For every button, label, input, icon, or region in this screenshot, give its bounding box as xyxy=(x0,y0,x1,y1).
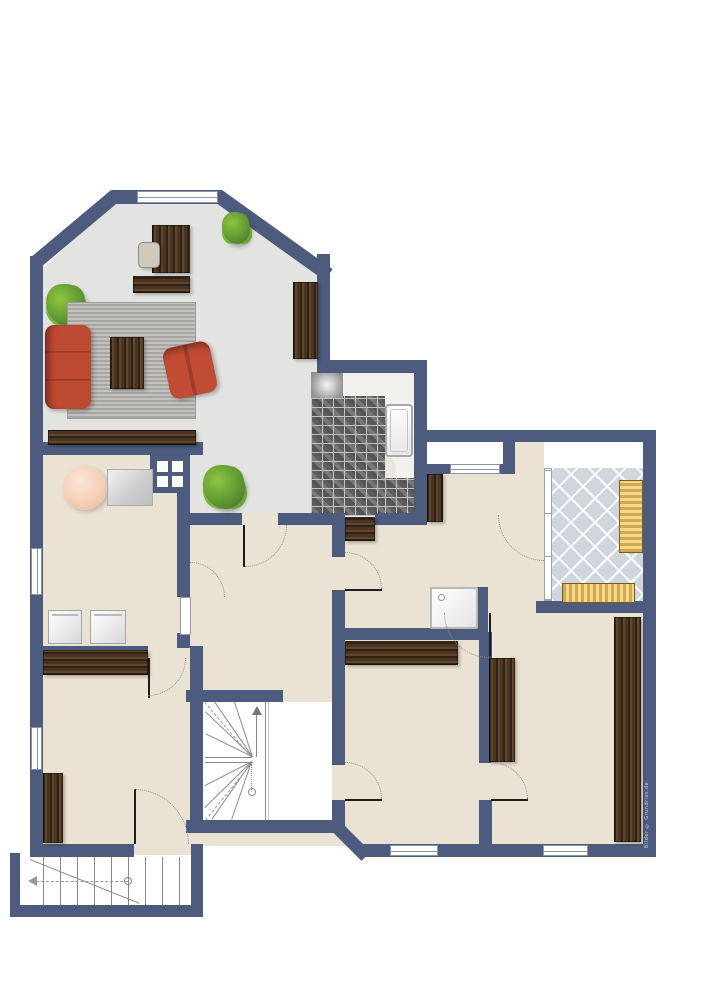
stair-walk-start-circle xyxy=(248,788,256,796)
paper-lamp xyxy=(63,466,107,510)
glass-block xyxy=(157,461,168,472)
stair-edge-line xyxy=(265,702,266,820)
hall-mid-wall xyxy=(332,525,345,557)
hall-top-wall xyxy=(190,513,242,525)
shower-head-plate xyxy=(311,372,343,398)
hall-mid-wall-2 xyxy=(332,590,345,702)
stairwell-top-wall xyxy=(186,690,283,702)
coffee-table xyxy=(110,337,144,389)
bottom-window-2 xyxy=(543,845,588,856)
lowboard xyxy=(48,430,196,445)
terrace-glass-wall xyxy=(544,468,552,601)
rooms-divider-wall-2 xyxy=(479,800,492,857)
stair-tread xyxy=(205,762,252,763)
wardrobe-right-room-left xyxy=(489,658,515,762)
wardrobe-bottom-left-room-top xyxy=(43,650,148,675)
armchair xyxy=(161,340,219,401)
threshold-cabinet xyxy=(345,517,375,541)
glass-block-pier xyxy=(150,455,190,493)
bathroom-bottom-wall xyxy=(278,513,345,525)
wardrobe-right-room-right xyxy=(614,617,641,842)
external-stair-tread xyxy=(145,857,146,905)
desk-return xyxy=(133,276,190,293)
external-stair-floor xyxy=(20,855,191,905)
stair-edge-line xyxy=(268,702,269,820)
external-stair-bottom-wall xyxy=(10,905,203,917)
external-stair-walk-line xyxy=(36,881,128,882)
external-stair-tread xyxy=(179,857,180,905)
stair-left-wall xyxy=(190,646,203,833)
stair-walk-line xyxy=(256,714,257,757)
external-stair-right-wall xyxy=(191,844,203,917)
door-leaf-middle-room xyxy=(345,799,382,801)
glass-block xyxy=(172,461,183,472)
utility-right-wall-2 xyxy=(177,633,190,648)
utility-right-wall xyxy=(177,493,190,597)
left-window-2 xyxy=(31,727,42,770)
top-window xyxy=(137,191,218,203)
dryer xyxy=(90,610,126,644)
left-window-1 xyxy=(31,548,42,595)
wardrobe-right-top-room xyxy=(427,474,443,522)
living-right-wall xyxy=(317,254,330,373)
glass-block xyxy=(172,476,183,487)
bathroom-mosaic-tiles xyxy=(311,396,385,516)
stairwell-bottom-wall xyxy=(186,820,343,833)
bottom-left-wall xyxy=(30,844,134,857)
sun-lounger-vertical xyxy=(619,480,643,553)
washing-machine xyxy=(48,610,82,644)
watermark-text: Bilder © Grundriss.de xyxy=(644,770,655,848)
stair-tread xyxy=(205,757,252,758)
stairwell-right-wall xyxy=(332,702,345,765)
bathroom-mosaic-tiles-2 xyxy=(385,478,414,516)
door-leaf-right-top-room xyxy=(489,613,491,657)
stair-direction-arrow xyxy=(252,706,262,715)
external-stair-walk-start-circle xyxy=(124,877,132,885)
niche-window xyxy=(450,464,500,474)
external-stair-tread xyxy=(162,857,163,905)
bottom-window-1 xyxy=(390,845,438,856)
door-leaf-hall xyxy=(345,589,382,591)
niche-outside-area xyxy=(427,442,503,464)
stairwell-right-wall-2 xyxy=(332,800,345,833)
bathroom-bottom-wall-2 xyxy=(375,513,427,525)
plant-1 xyxy=(222,212,250,244)
wardrobe-bottom-left-room-left xyxy=(43,773,63,843)
door-leaf-right-room xyxy=(491,799,528,801)
sun-lounger-horizontal xyxy=(562,583,635,603)
bathroom-top-wall xyxy=(317,360,427,373)
desk-chair xyxy=(138,242,160,268)
external-stair-direction-arrow xyxy=(28,876,37,886)
sideboard xyxy=(293,282,318,359)
utility-door-leaf xyxy=(180,597,191,635)
plant-3 xyxy=(203,465,245,509)
floor-plan: Bilder © Grundriss.de xyxy=(0,0,707,1000)
niche-top-wall xyxy=(414,430,515,442)
top-right-wall xyxy=(510,430,656,442)
side-table-gray xyxy=(107,469,153,506)
bathtub xyxy=(385,404,413,457)
sofa xyxy=(45,325,91,409)
wardrobe-middle-room xyxy=(345,641,458,665)
glass-block xyxy=(157,476,168,487)
